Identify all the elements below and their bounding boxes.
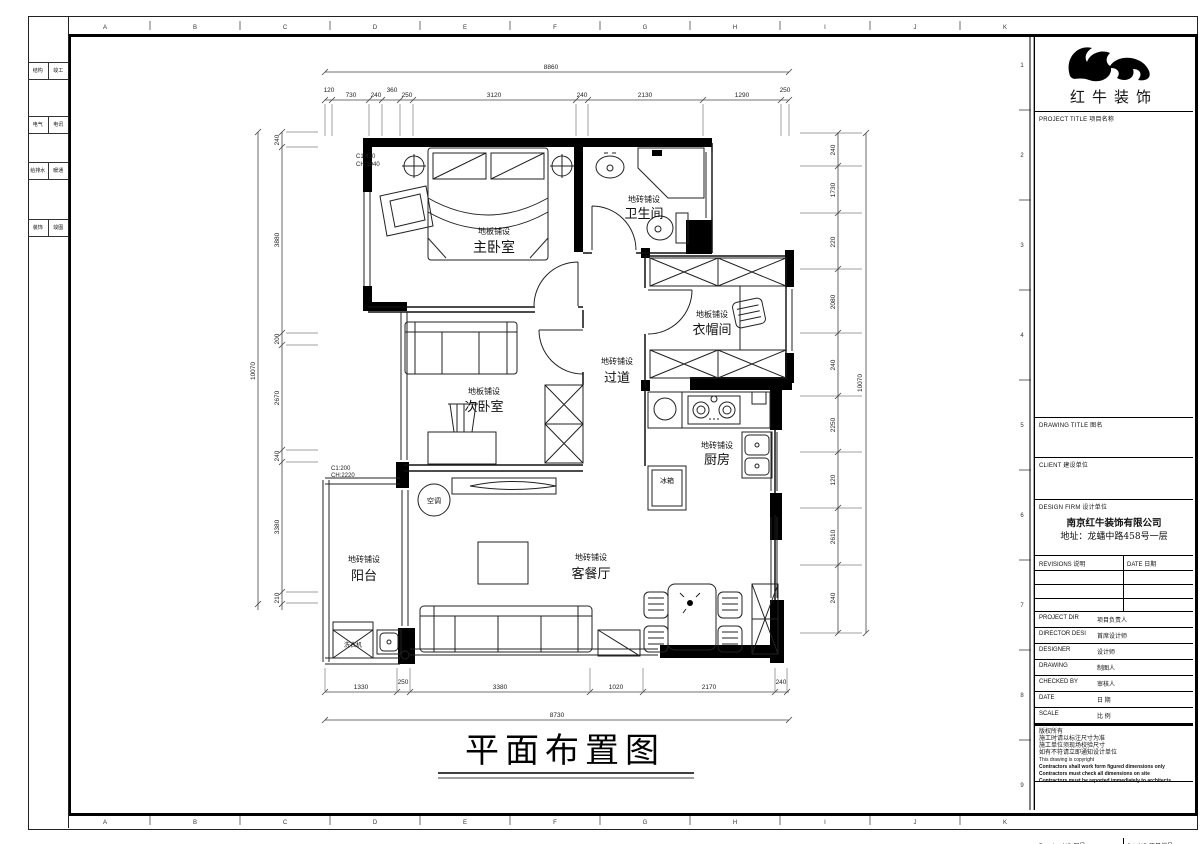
- grid-ruler-right: 1 2 3 4 5 6 7 8 9: [1019, 34, 1034, 810]
- ac-label: 空调: [427, 496, 441, 505]
- staff-role-en: CHECKED BY: [1039, 679, 1078, 685]
- dining-chair: [718, 592, 742, 618]
- dimensions-right: 240 1730 220 2080 240 2250 120 2610 240 …: [800, 130, 869, 636]
- shower-mixer-icon: [652, 150, 662, 156]
- staff-role-en: DESIGNER: [1039, 647, 1070, 653]
- room-name-label: 厨房: [704, 452, 730, 468]
- staff-row: DRAWING 制图人: [1035, 660, 1193, 676]
- grid-letter: H: [733, 25, 737, 31]
- grid-number: 6: [1020, 513, 1024, 519]
- room-finish-label: 地砖铺设: [348, 554, 380, 564]
- fridge: [648, 466, 686, 510]
- staff-role-en: DIRECTOR DESI: [1039, 631, 1086, 637]
- dining-table: [668, 584, 716, 650]
- firm-name: 南京红牛装饰有限公司: [1035, 517, 1193, 531]
- grid-letter: K: [1003, 820, 1007, 826]
- grid-letter: A: [103, 25, 107, 31]
- drawing-sheet: 结构 竣工 电气 电讯 给排水 暖通 装饰 竣图 A B C D E F G H…: [0, 0, 1200, 844]
- drawing-title-section: DRAWING TITLE 图名: [1035, 418, 1193, 458]
- desk: [428, 432, 496, 464]
- grid-letter: H: [733, 820, 737, 826]
- project-title-label: PROJECT TITLE 项目名称: [1035, 112, 1193, 123]
- grid-number: 5: [1020, 423, 1024, 429]
- staff-role-en: DRAWING: [1039, 663, 1068, 669]
- dim-value: 1020: [609, 684, 624, 691]
- dimensions-top: 8860 120 730 240 360 250 3120 240 2130 1…: [322, 64, 792, 136]
- room-name-label: 衣帽间: [692, 322, 731, 338]
- grid-letter: E: [463, 25, 467, 31]
- window-mark: C1:200: [331, 466, 351, 472]
- dim-value: 250: [402, 92, 413, 99]
- grid-letter: K: [1003, 25, 1007, 31]
- note-line: 如有不符请立即通知设计单位: [1039, 750, 1193, 757]
- dim-value: 240: [274, 450, 281, 461]
- firm-address: 地址：龙蟠中路458号一层: [1035, 531, 1193, 544]
- grid-letter: E: [463, 820, 467, 826]
- washing-machine-label: 洗衣机: [344, 641, 362, 649]
- stove: [688, 396, 740, 424]
- dim-value: 8730: [550, 712, 565, 719]
- dim-value: 3120: [487, 92, 502, 99]
- staff-role-zh: 项目负责人: [1097, 615, 1127, 624]
- dim-value: 360: [387, 87, 398, 94]
- dim-value: 240: [577, 92, 588, 99]
- grid-letter: J: [914, 820, 917, 826]
- laundry-sink: [377, 630, 401, 654]
- grid-letter: F: [553, 25, 557, 31]
- grid-letter: C: [283, 25, 288, 31]
- grid-number: 8: [1020, 693, 1024, 699]
- room-name-label: 阳台: [351, 569, 377, 584]
- grid-letter: C: [283, 820, 288, 826]
- room-finish-label: 地砖铺设: [628, 194, 660, 204]
- date-col-label: DATE 日期: [1127, 559, 1156, 568]
- window-mark: C1:430: [356, 154, 376, 160]
- floor-plan-canvas: A B C D E F G H I J K A B C D E F G H I …: [0, 0, 1200, 844]
- grid-letter: D: [373, 820, 378, 826]
- grid-letter: J: [914, 25, 917, 31]
- shower: [638, 148, 704, 198]
- dim-value: 2170: [702, 684, 717, 691]
- staff-row: DIRECTOR DESI 首席设计师: [1035, 628, 1193, 644]
- dim-value: 240: [830, 359, 837, 370]
- dimensions-left: 240 3880 200 2670 240 3380 210 10070: [250, 129, 318, 610]
- drawing-number-section: Drawing NO 图号 Job NO 项目编号: [1035, 838, 1193, 844]
- dim-value: 8860: [544, 64, 559, 71]
- dim-value: 10070: [857, 374, 864, 392]
- coffee-table: [478, 542, 528, 584]
- grid-letter: G: [643, 820, 648, 826]
- client-section: CLIENT 建设单位: [1035, 458, 1193, 500]
- dim-value: 2250: [830, 417, 837, 432]
- note-line: Contractors must be reported immediately…: [1039, 778, 1193, 785]
- room-finish-label: 地板铺设: [696, 309, 728, 319]
- dim-value: 220: [830, 236, 837, 247]
- window-mark: CH:2220: [331, 473, 355, 479]
- dim-value: 240: [776, 679, 787, 686]
- second-bedroom-door: [539, 330, 583, 374]
- staff-role-zh: 比 例: [1097, 711, 1111, 720]
- revision-row-line: [1035, 598, 1193, 599]
- note-line: 版权所有: [1039, 729, 1193, 736]
- staff-row: DESIGNER 设计师: [1035, 644, 1193, 660]
- revision-row-line: [1035, 584, 1193, 585]
- staff-row: PROJECT DIR 项目负责人: [1035, 612, 1193, 628]
- logo-section: 红牛装饰: [1035, 34, 1193, 112]
- room-finish-label: 地砖铺设: [601, 356, 633, 366]
- dim-value: 1290: [735, 92, 750, 99]
- pendant-lamp-icon: [687, 600, 693, 606]
- staff-role-zh: 制图人: [1097, 663, 1115, 672]
- staff-role-zh: 设计师: [1097, 647, 1115, 656]
- dim-value: 240: [371, 92, 382, 99]
- cloakroom-door: [648, 290, 692, 334]
- dim-value: 200: [274, 333, 281, 344]
- room-name-label: 主卧室: [473, 239, 515, 256]
- note-line: Contractors shall work form figured dime…: [1039, 764, 1193, 771]
- staff-role-en: DATE: [1039, 695, 1055, 701]
- dim-value: 730: [346, 92, 357, 99]
- tv: [470, 482, 556, 490]
- dim-value: 10070: [250, 362, 257, 380]
- dim-value: 3380: [493, 684, 508, 691]
- dim-value: 2080: [830, 294, 837, 309]
- staff-role-zh: 首席设计师: [1097, 631, 1127, 640]
- title-block: 红牛装饰 PROJECT TITLE 项目名称 DRAWING TITLE 图名…: [1034, 34, 1193, 810]
- staff-role-en: PROJECT DIR: [1039, 615, 1079, 621]
- revision-row-line: [1035, 570, 1193, 571]
- dim-value: 3380: [274, 519, 281, 534]
- dim-value: 1730: [830, 182, 837, 197]
- plan-title-text: 平面布置图: [465, 731, 665, 771]
- note-line: 施工时请以标注尺寸为准: [1039, 736, 1193, 743]
- dining-chair: [644, 592, 668, 618]
- laundry-counter: [333, 622, 373, 630]
- revisions-table: REVISIONS 说明 DATE 日期: [1035, 556, 1193, 612]
- grid-number: 3: [1020, 243, 1024, 249]
- dim-value: 240: [274, 134, 281, 145]
- room-name-label: 客餐厅: [571, 566, 610, 582]
- plan-title: 平面布置图: [438, 731, 694, 778]
- basin: [596, 156, 624, 178]
- grid-number: 4: [1020, 333, 1024, 339]
- daybed-sofa: [405, 322, 517, 374]
- doors: [534, 206, 692, 374]
- grid-ruler-top: A B C D E F G H I J K: [103, 21, 1007, 31]
- notes-section: 版权所有 施工时请以标注尺寸为准 施工单位须现场校验尺寸 如有不符请立即通知设计…: [1035, 724, 1193, 782]
- project-title-section: PROJECT TITLE 项目名称: [1035, 112, 1193, 418]
- furniture-kitchen: 冰箱: [648, 392, 772, 510]
- note-line: This drawing is copyright: [1039, 757, 1193, 764]
- sofa: [420, 606, 592, 652]
- dim-value: 120: [324, 87, 335, 94]
- design-firm-section: DESIGN FIRM 设计单位 南京红牛装饰有限公司 地址：龙蟠中路458号一…: [1035, 500, 1193, 556]
- dim-value: 3880: [274, 232, 281, 247]
- grid-letter: D: [373, 25, 378, 31]
- room-finish-label: 地砖铺设: [575, 552, 607, 562]
- grid-letter: B: [193, 820, 197, 826]
- grid-number: 9: [1020, 783, 1024, 789]
- dimensions-bottom: 1330 250 3380 1020 2170 240 8730: [322, 668, 792, 723]
- dim-value: 210: [274, 592, 281, 603]
- dim-value: 1330: [354, 684, 369, 691]
- room-name-label: 次卧室: [464, 399, 503, 415]
- rednull-logo-icon: [1056, 38, 1172, 84]
- grid-letter: I: [824, 25, 826, 31]
- prep-sink: [654, 398, 676, 420]
- furniture-balcony: 洗衣机: [333, 622, 409, 659]
- dim-value: 250: [398, 679, 409, 686]
- room-finish-label: 地砖铺设: [701, 440, 733, 450]
- staff-role-en: SCALE: [1039, 711, 1059, 717]
- room-name-label: 卫生间: [624, 207, 663, 222]
- logo-text: 红牛装饰: [1070, 86, 1158, 107]
- note-line: Contractors must check all dimensions on…: [1039, 771, 1193, 778]
- drawing-title-label: DRAWING TITLE 图名: [1035, 418, 1193, 429]
- grid-number: 1: [1020, 63, 1024, 69]
- room-finish-label: 地板铺设: [478, 226, 510, 236]
- dim-value: 250: [780, 87, 791, 94]
- grid-number: 2: [1020, 153, 1024, 159]
- revisions-label: REVISIONS 说明: [1039, 559, 1085, 568]
- master-door: [534, 262, 578, 306]
- dim-value: 2130: [638, 92, 653, 99]
- grid-letter: B: [193, 25, 197, 31]
- dim-value: 2610: [830, 529, 837, 544]
- grid-letter: A: [103, 820, 107, 826]
- window-marks: C1:430 CH:1940 C1:200 CH:2220: [331, 154, 380, 479]
- dim-value: 2670: [274, 390, 281, 405]
- staff-row: DATE 日 期: [1035, 692, 1193, 708]
- number-divider: [1123, 838, 1124, 844]
- tilted-desk: [380, 186, 433, 236]
- grid-number: 7: [1020, 603, 1024, 609]
- staff-row: SCALE 比 例: [1035, 708, 1193, 724]
- staff-row: CHECKED BY 审核人: [1035, 676, 1193, 692]
- dim-value: 120: [830, 474, 837, 485]
- grid-letter: I: [824, 820, 826, 826]
- grid-letter: G: [643, 25, 648, 31]
- windows: [323, 152, 792, 664]
- room-finish-label: 地板铺设: [468, 386, 500, 396]
- dim-value: 240: [830, 592, 837, 603]
- switch-box: [752, 392, 766, 404]
- window-mark: CH:1940: [356, 162, 380, 168]
- fridge-label: 冰箱: [660, 476, 674, 485]
- staff-role-zh: 日 期: [1097, 695, 1111, 704]
- tv-console: [452, 478, 556, 494]
- client-label: CLIENT 建设单位: [1035, 458, 1193, 469]
- dim-value: 240: [830, 144, 837, 155]
- grid-letter: F: [553, 820, 557, 826]
- design-firm-label: DESIGN FIRM 设计单位: [1035, 500, 1193, 511]
- note-line: 施工单位须现场校验尺寸: [1039, 743, 1193, 750]
- staff-role-zh: 审核人: [1097, 679, 1115, 688]
- grid-ruler-bottom: A B C D E F G H I J K: [103, 816, 1007, 826]
- room-name-label: 过道: [604, 371, 630, 386]
